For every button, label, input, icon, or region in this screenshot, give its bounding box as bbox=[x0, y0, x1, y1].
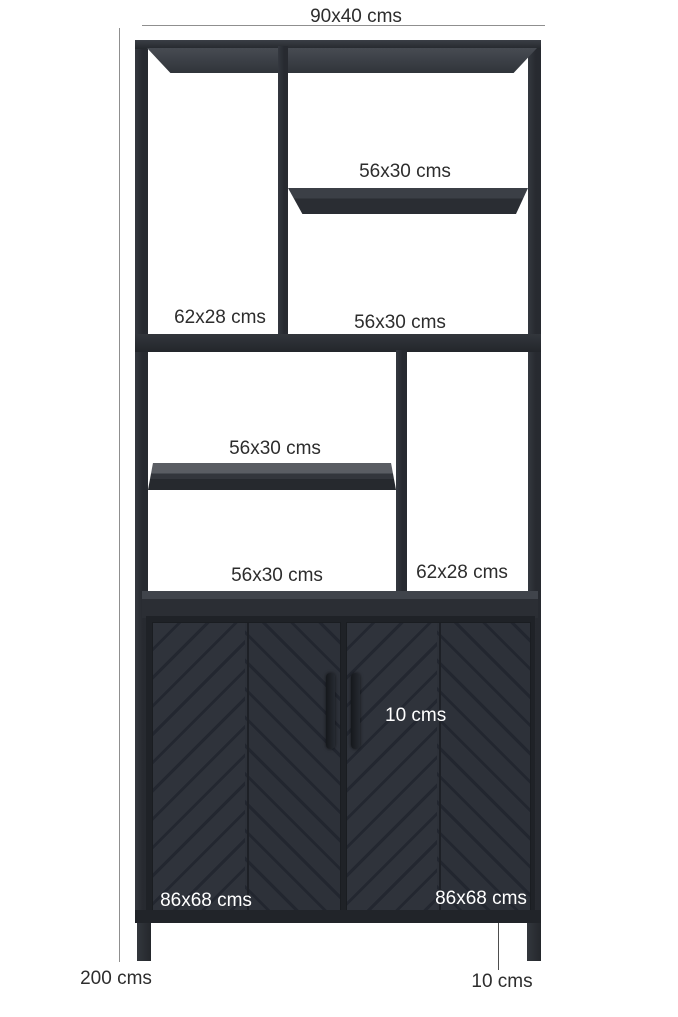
door-panel-spine bbox=[439, 623, 441, 913]
door-panel-spine bbox=[247, 623, 249, 913]
dimension-label-shelf-top-right: 56x30 cms bbox=[359, 162, 451, 181]
cabinet-top-board bbox=[142, 591, 538, 618]
frame-middle-bar bbox=[135, 334, 541, 352]
shelf-middle-left bbox=[148, 463, 396, 490]
dimension-label-right-tall-cell: 62x28 cms bbox=[416, 563, 508, 582]
cabinet-door-right bbox=[346, 622, 531, 914]
vertical-divider-upper bbox=[278, 46, 288, 340]
dimension-label-door-right: 86x68 cms bbox=[435, 889, 527, 908]
top-board bbox=[147, 48, 537, 73]
herringbone-panel bbox=[437, 623, 530, 913]
dimension-label-total-height: 200 cms bbox=[80, 969, 152, 988]
dimension-label-lower-left-cell: 56x30 cms bbox=[231, 566, 323, 585]
product-dimension-diagram: 90x40 cms 56x30 cms 62x28 cms 56x30 cms … bbox=[0, 0, 678, 1017]
leg-left bbox=[137, 923, 151, 961]
cabinet-door-left bbox=[152, 622, 341, 914]
vertical-divider-lower bbox=[396, 350, 407, 593]
leg-pointer-line bbox=[498, 918, 499, 970]
dimension-label-door-left: 86x68 cms bbox=[160, 891, 252, 910]
frame-bottom-bar bbox=[135, 910, 541, 923]
dimension-label-right-mid-cell: 56x30 cms bbox=[354, 313, 446, 332]
herringbone-panel bbox=[153, 623, 248, 913]
dimension-label-top-width: 90x40 cms bbox=[310, 7, 402, 26]
cabinet-body bbox=[146, 616, 535, 920]
frame-top-bar bbox=[135, 40, 541, 49]
herringbone-panel bbox=[347, 623, 440, 913]
dimension-label-handle: 10 cms bbox=[385, 706, 446, 725]
door-handle-right bbox=[351, 673, 360, 749]
dimension-label-shelf-mid-left: 56x30 cms bbox=[229, 439, 321, 458]
herringbone-panel bbox=[245, 623, 340, 913]
shelf-upper-right bbox=[288, 188, 528, 214]
dimension-label-left-tall-cell: 62x28 cms bbox=[174, 308, 266, 327]
height-dimension-line bbox=[119, 28, 120, 962]
door-handle-left bbox=[326, 673, 335, 749]
leg-right bbox=[527, 923, 541, 961]
dimension-label-leg-height: 10 cms bbox=[471, 972, 532, 991]
